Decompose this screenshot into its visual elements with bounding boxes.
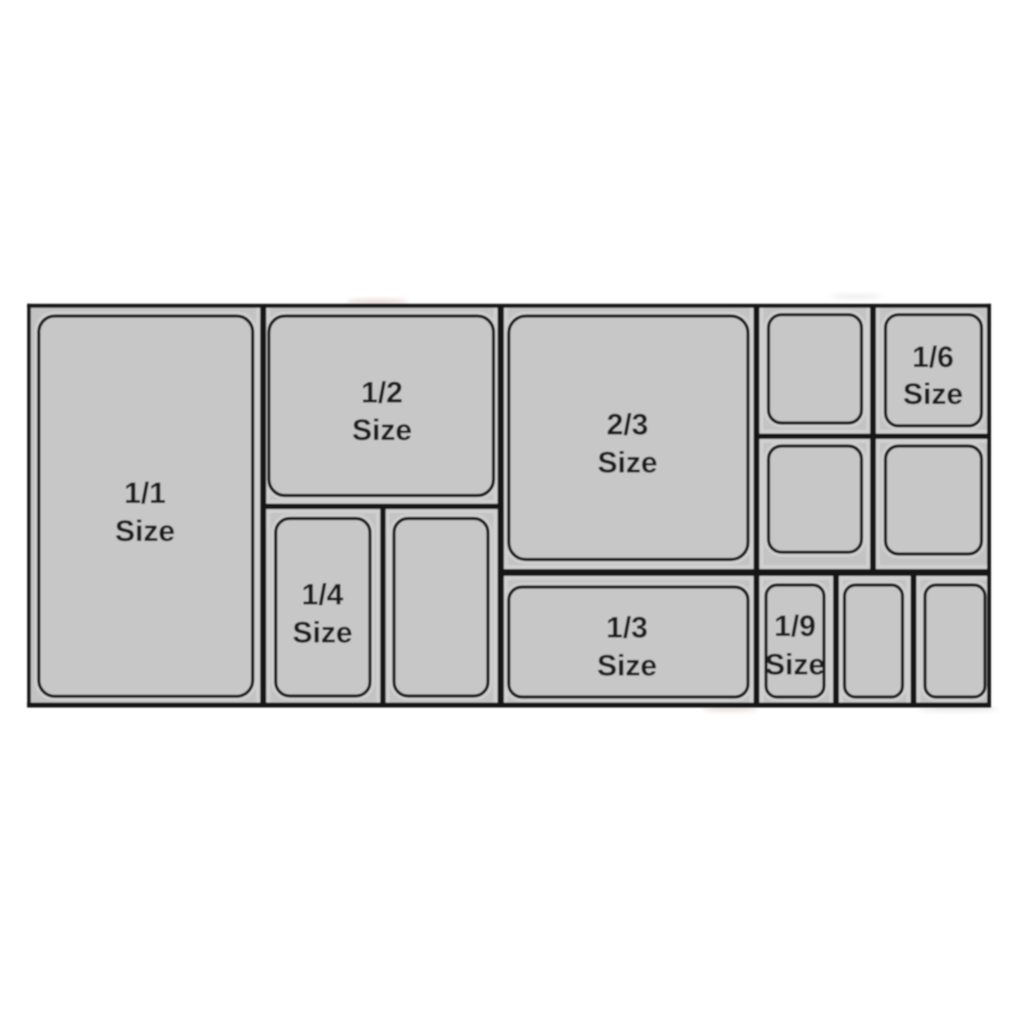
svg-text:1/6: 1/6 <box>912 341 954 374</box>
svg-text:1/9: 1/9 <box>774 610 816 643</box>
svg-text:Size: Size <box>597 650 657 683</box>
svg-text:Size: Size <box>352 414 412 447</box>
svg-text:1/3: 1/3 <box>606 612 648 645</box>
svg-text:Size: Size <box>115 515 175 548</box>
svg-text:Size: Size <box>597 447 657 480</box>
svg-text:1/2: 1/2 <box>361 377 403 410</box>
svg-text:Size: Size <box>903 378 963 411</box>
svg-text:1/4: 1/4 <box>302 579 344 612</box>
svg-text:Size: Size <box>292 617 352 650</box>
svg-text:Size: Size <box>765 649 825 682</box>
svg-text:2/3: 2/3 <box>607 409 649 442</box>
svg-text:1/1: 1/1 <box>124 477 166 510</box>
